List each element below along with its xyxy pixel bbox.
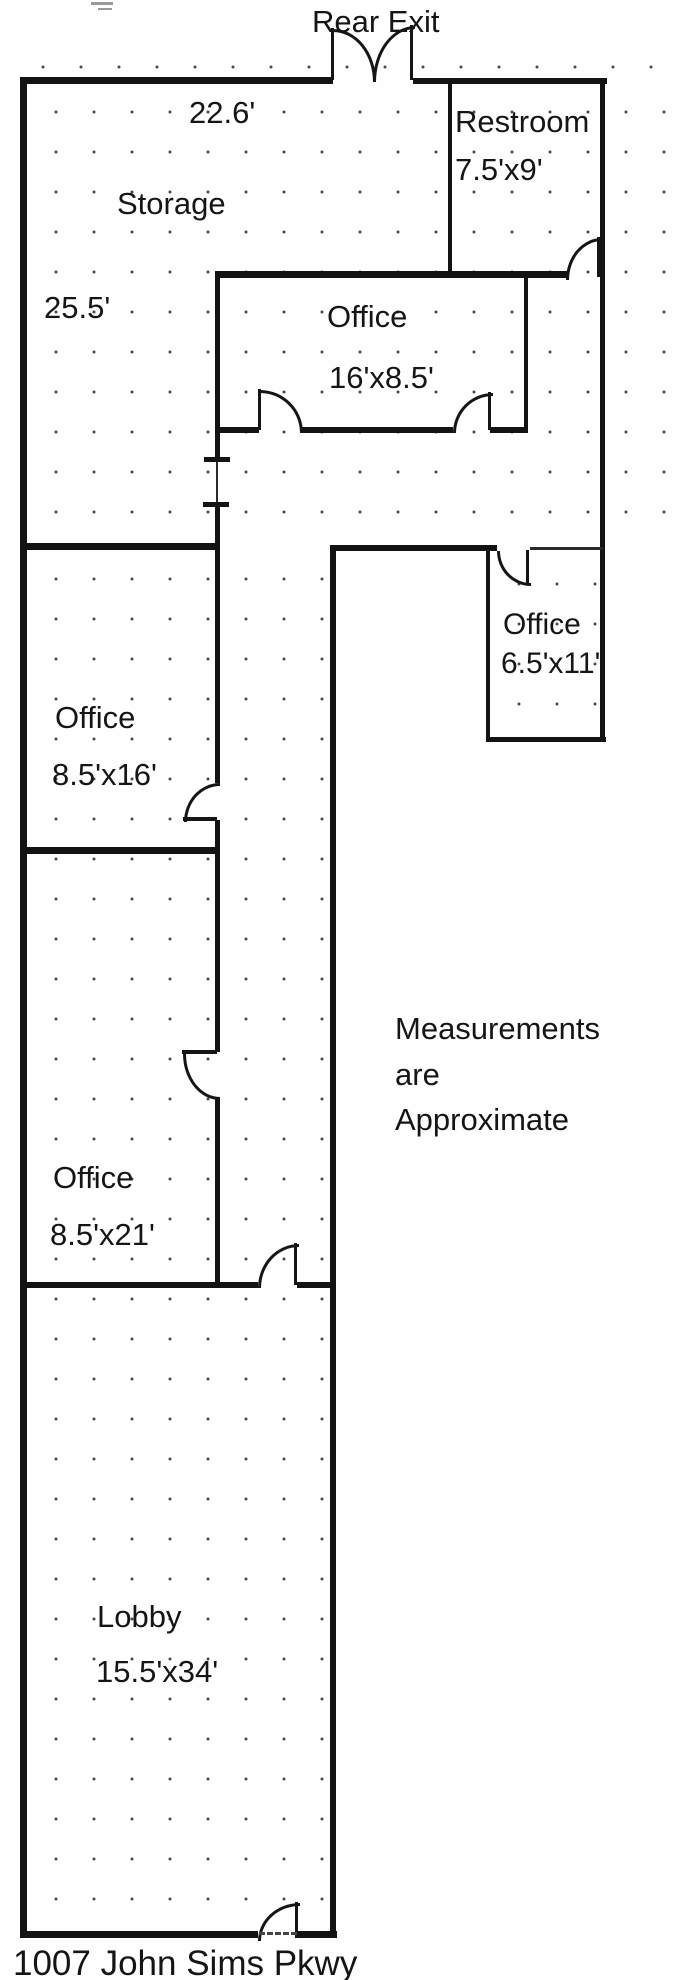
wall-corridor-left-4 (215, 1098, 220, 1288)
wall-office-center-right (524, 278, 528, 430)
wall-lobby-bottom-left-of-door (20, 1931, 258, 1938)
storage-width-label: 22.6' (189, 95, 255, 131)
office-center-right-door-swing (453, 393, 493, 433)
office-left-lower-door-swing (183, 1054, 220, 1100)
office-left-upper-dims: 8.5'x16' (52, 757, 157, 793)
wall-hall-south (330, 545, 497, 551)
scan-smudge (91, 2, 113, 5)
office-center-label: Office (327, 299, 407, 335)
wall-hall-south-light (530, 547, 603, 550)
office-right-door-swing (497, 551, 531, 586)
wall-lobby-top-a (20, 1282, 258, 1288)
lobby-corridor-door-swing (258, 1244, 299, 1288)
lobby-label: Lobby (97, 1599, 181, 1635)
wall-restroom-left (448, 80, 452, 276)
front-door-swing (258, 1903, 300, 1941)
wall-office-right-bottom (486, 737, 606, 742)
dot-grid-small-office (488, 550, 603, 740)
wall-office-right-left (486, 550, 490, 742)
rear-exit-label: Rear Exit (312, 4, 439, 40)
note-line-2: are (395, 1057, 440, 1093)
storage-depth-label: 25.5' (44, 290, 110, 326)
office-center-dims: 16'x8.5' (329, 360, 434, 396)
address-label: 1007 John Sims Pkwy (13, 1944, 357, 1980)
wall-outer-left (20, 77, 27, 1938)
office-center-left-door-swing (260, 390, 303, 433)
front-door-threshold (259, 1932, 297, 1935)
wall-corridor-left-1 (215, 271, 220, 457)
floor-plan: Rear Exit 22.6' Storage 25.5' Restroom 7… (0, 0, 678, 1980)
wall-office-center-bottom-c (490, 427, 528, 433)
wall-office-left-divider (20, 847, 220, 854)
office-left-upper-door-swing (184, 783, 220, 822)
wall-office-center-bottom-a (215, 427, 259, 433)
office-left-lower-dims: 8.5'x21' (50, 1217, 155, 1253)
opening-tick-upper (204, 457, 230, 462)
wall-office-center-bottom-b (300, 427, 453, 433)
wall-outer-top-right-of-rear-door (413, 78, 607, 84)
wall-office-left-upper-top (20, 543, 220, 550)
wall-corridor-opening-jamb-line (216, 457, 218, 505)
office-left-upper-label: Office (55, 700, 135, 736)
wall-outer-right (600, 80, 605, 742)
wall-corridor-right (330, 545, 336, 1936)
restroom-dims: 7.5'x9' (455, 152, 543, 188)
lobby-dims: 15.5'x34' (96, 1654, 218, 1690)
wall-corridor-left-3 (215, 820, 220, 1052)
storage-room-label: Storage (117, 186, 226, 222)
scan-smudge (98, 8, 112, 10)
restroom-label: Restroom (455, 104, 589, 140)
note-line-3: Approximate (395, 1102, 569, 1138)
wall-office-center-top (215, 271, 567, 278)
restroom-door-swing (566, 238, 602, 280)
office-left-lower-label: Office (53, 1160, 133, 1196)
note-line-1: Measurements (395, 1011, 600, 1047)
office-right-label: Office (503, 608, 581, 643)
wall-outer-top-left-of-rear-door (20, 77, 333, 84)
office-right-dims: 6.5'x11' (501, 647, 600, 682)
